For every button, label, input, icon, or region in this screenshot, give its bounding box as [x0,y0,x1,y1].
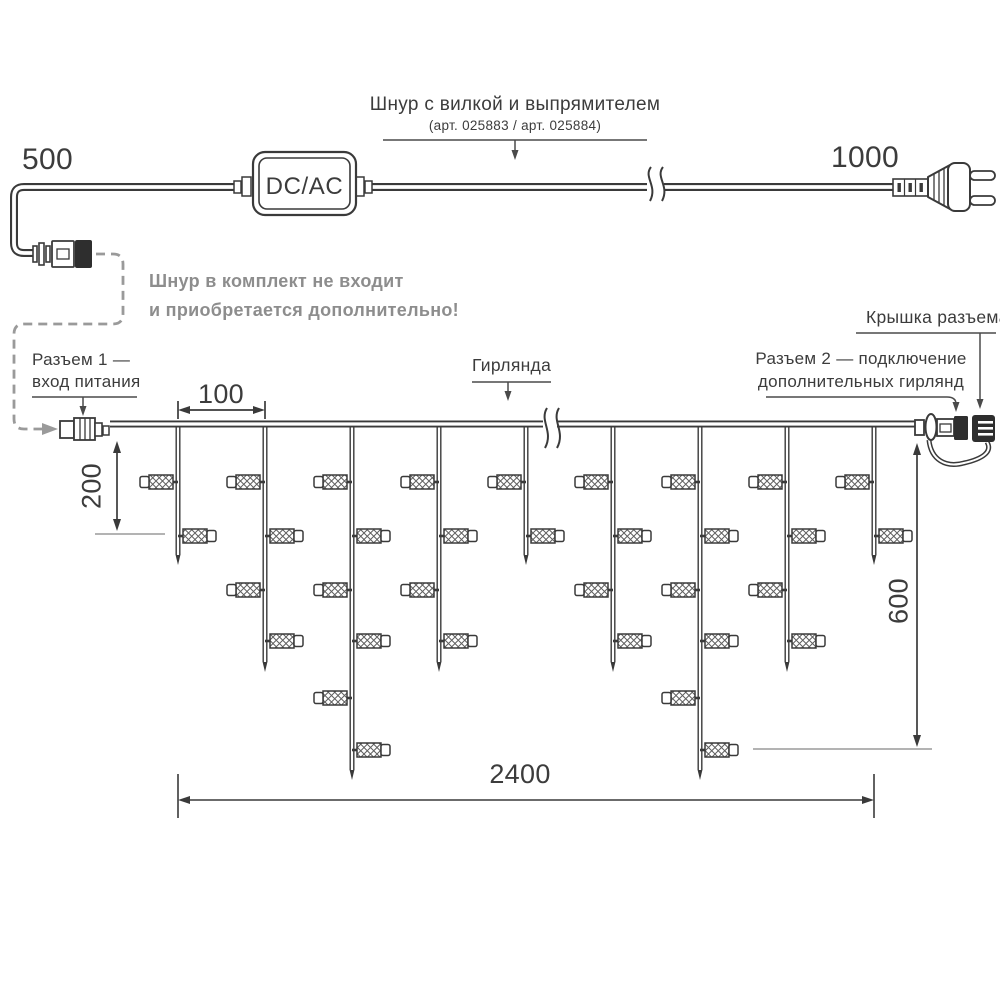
connector-1-icon [60,418,109,440]
leader-cord-label [383,140,647,160]
garland-wire [110,408,917,448]
euro-plug-icon [893,163,995,211]
cap-label: Крышка разъема [866,307,1000,328]
dashed-route [14,254,123,435]
note-line-1: Шнур в комплект не входит [149,267,459,296]
dashed-arrow-icon [42,423,58,435]
leader-connector-1 [32,397,137,416]
leader-connector-2 [766,397,960,412]
dim-500-label: 500 [22,143,73,177]
dim-600-label: 600 [884,578,915,624]
dim-200-label: 200 [77,463,108,509]
diagram-page: Шнур с вилкой и выпрямителем (арт. 02588… [0,0,1000,1000]
power-cord-group [14,167,895,253]
garland-label: Гирлянда [472,355,551,376]
connector-cap-icon [972,415,995,442]
note-line-2: и приобретается дополнительно! [149,296,459,325]
connector-1-line-2: вход питания [32,371,141,393]
connector-2-label: Разъем 2 — подключение дополнительных ги… [755,347,966,393]
cord-break-icon [647,167,664,201]
dim-100-label: 100 [198,379,244,410]
cord-label-articles: (арт. 025883 / арт. 025884) [429,118,601,133]
connector-1-label: Разъем 1 — вход питания [32,349,141,393]
leader-garland [472,382,551,401]
cord-label-title: Шнур с вилкой и выпрямителем [370,94,660,116]
dim-1000-label: 1000 [831,141,899,175]
adapter-label: DC/AC [266,173,344,201]
garland-break-icon [543,408,560,448]
garland-drops [140,424,912,780]
connector-2-line-1: Разъем 2 — подключение [755,347,966,370]
cord-end-connector-icon [33,240,92,268]
dim-2400-label: 2400 [489,759,550,790]
connector-2-icon [915,414,995,464]
note-not-included: Шнур в комплект не входит и приобретаетс… [149,267,459,325]
connector-2-line-2: дополнительных гирлянд [755,370,966,393]
connector-1-line-1: Разъем 1 — [32,349,141,371]
